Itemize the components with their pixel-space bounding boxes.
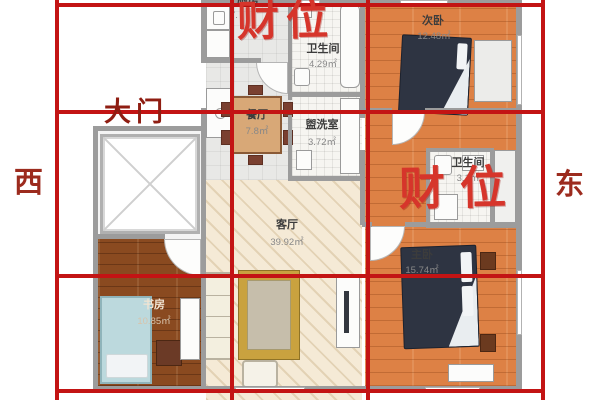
- main-door-label: 大门: [104, 99, 168, 126]
- grid-line-horizontal-3: [55, 274, 545, 278]
- wall: [288, 176, 364, 181]
- washroom-basin: [296, 150, 312, 170]
- bedroom2-bed: [398, 34, 472, 116]
- wall: [93, 234, 165, 239]
- study-desk: [156, 340, 182, 366]
- grid-line-vertical-1: [55, 0, 59, 400]
- window: [517, 35, 522, 105]
- dining-area: 7.8㎡: [235, 127, 279, 137]
- window: [517, 270, 522, 335]
- tv-cabinet: [336, 276, 360, 348]
- armchair: [242, 360, 278, 388]
- bathroom-top-area: 4.29㎡: [295, 60, 351, 70]
- dining-chair: [248, 85, 263, 95]
- wall: [360, 0, 365, 118]
- compass-east-label: 东: [555, 171, 584, 200]
- elevator-x-icon: [103, 137, 197, 231]
- wall: [426, 148, 494, 152]
- rug: [238, 270, 300, 360]
- wealth-position-top-label: 财位: [237, 0, 336, 43]
- tv-icon: [344, 291, 349, 333]
- nightstand: [480, 252, 496, 270]
- grid-line-vertical-4: [541, 0, 545, 400]
- wall: [288, 92, 364, 97]
- grid-line-vertical-3: [366, 0, 370, 400]
- wall: [201, 0, 206, 62]
- wall: [93, 126, 98, 392]
- elevator-shaft: [100, 134, 200, 234]
- compass-west-label: 西: [14, 169, 43, 198]
- feng-shui-floor-plan: 厨房 7. 卫生间 4.29㎡ 次卧 12.48㎡ 餐厅 7.8㎡ 盥洗室 3.…: [0, 0, 600, 400]
- nightstand: [480, 334, 496, 352]
- washroom-label: 盥洗室: [292, 120, 352, 131]
- grid-line-horizontal-4: [55, 389, 545, 393]
- washroom-area: 3.72㎡: [292, 138, 352, 148]
- bedroom2-label: 次卧: [405, 16, 461, 27]
- master-label: 主卧: [396, 250, 448, 261]
- master-dresser: [448, 364, 494, 382]
- study-label: 书房: [126, 300, 182, 311]
- wealth-position-right-label: 财位: [399, 164, 522, 212]
- dining-table: [232, 96, 282, 154]
- kitchen-stove: [206, 30, 230, 58]
- wall: [201, 108, 206, 392]
- living-label: 客厅: [257, 220, 317, 231]
- living-area: 39.92㎡: [254, 238, 320, 248]
- wall: [426, 224, 494, 228]
- study-area: 10.85㎡: [122, 317, 186, 327]
- bathroom-top-label: 卫生间: [295, 44, 351, 55]
- dining-chair: [248, 155, 263, 165]
- bedroom2-wardrobe: [474, 40, 512, 102]
- grid-line-vertical-2: [230, 0, 234, 400]
- study-shelf: [180, 298, 200, 360]
- bedroom2-area: 12.48㎡: [402, 32, 466, 42]
- toilet: [294, 68, 310, 86]
- wall: [360, 150, 365, 225]
